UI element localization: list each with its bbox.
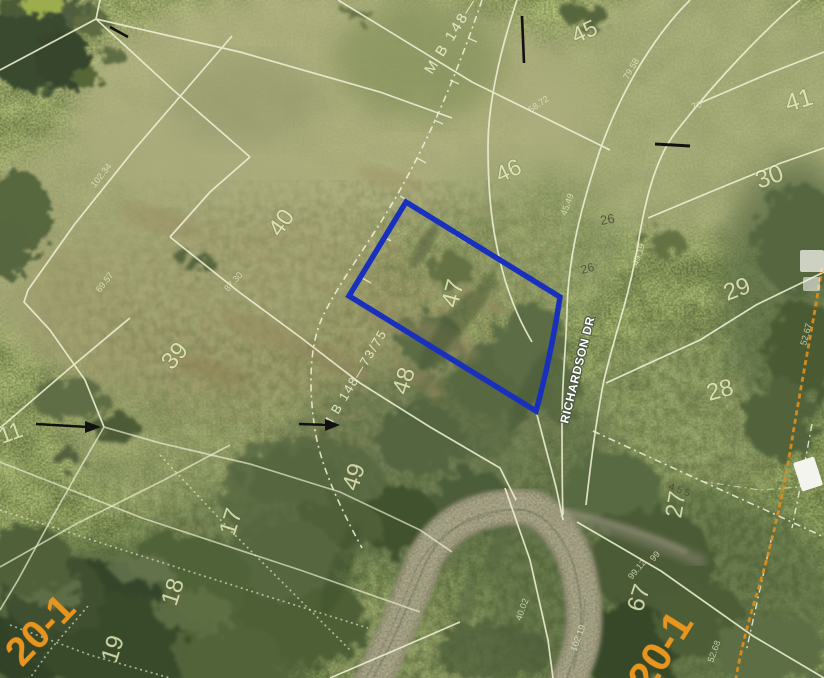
svg-text:26: 26 (599, 211, 616, 228)
